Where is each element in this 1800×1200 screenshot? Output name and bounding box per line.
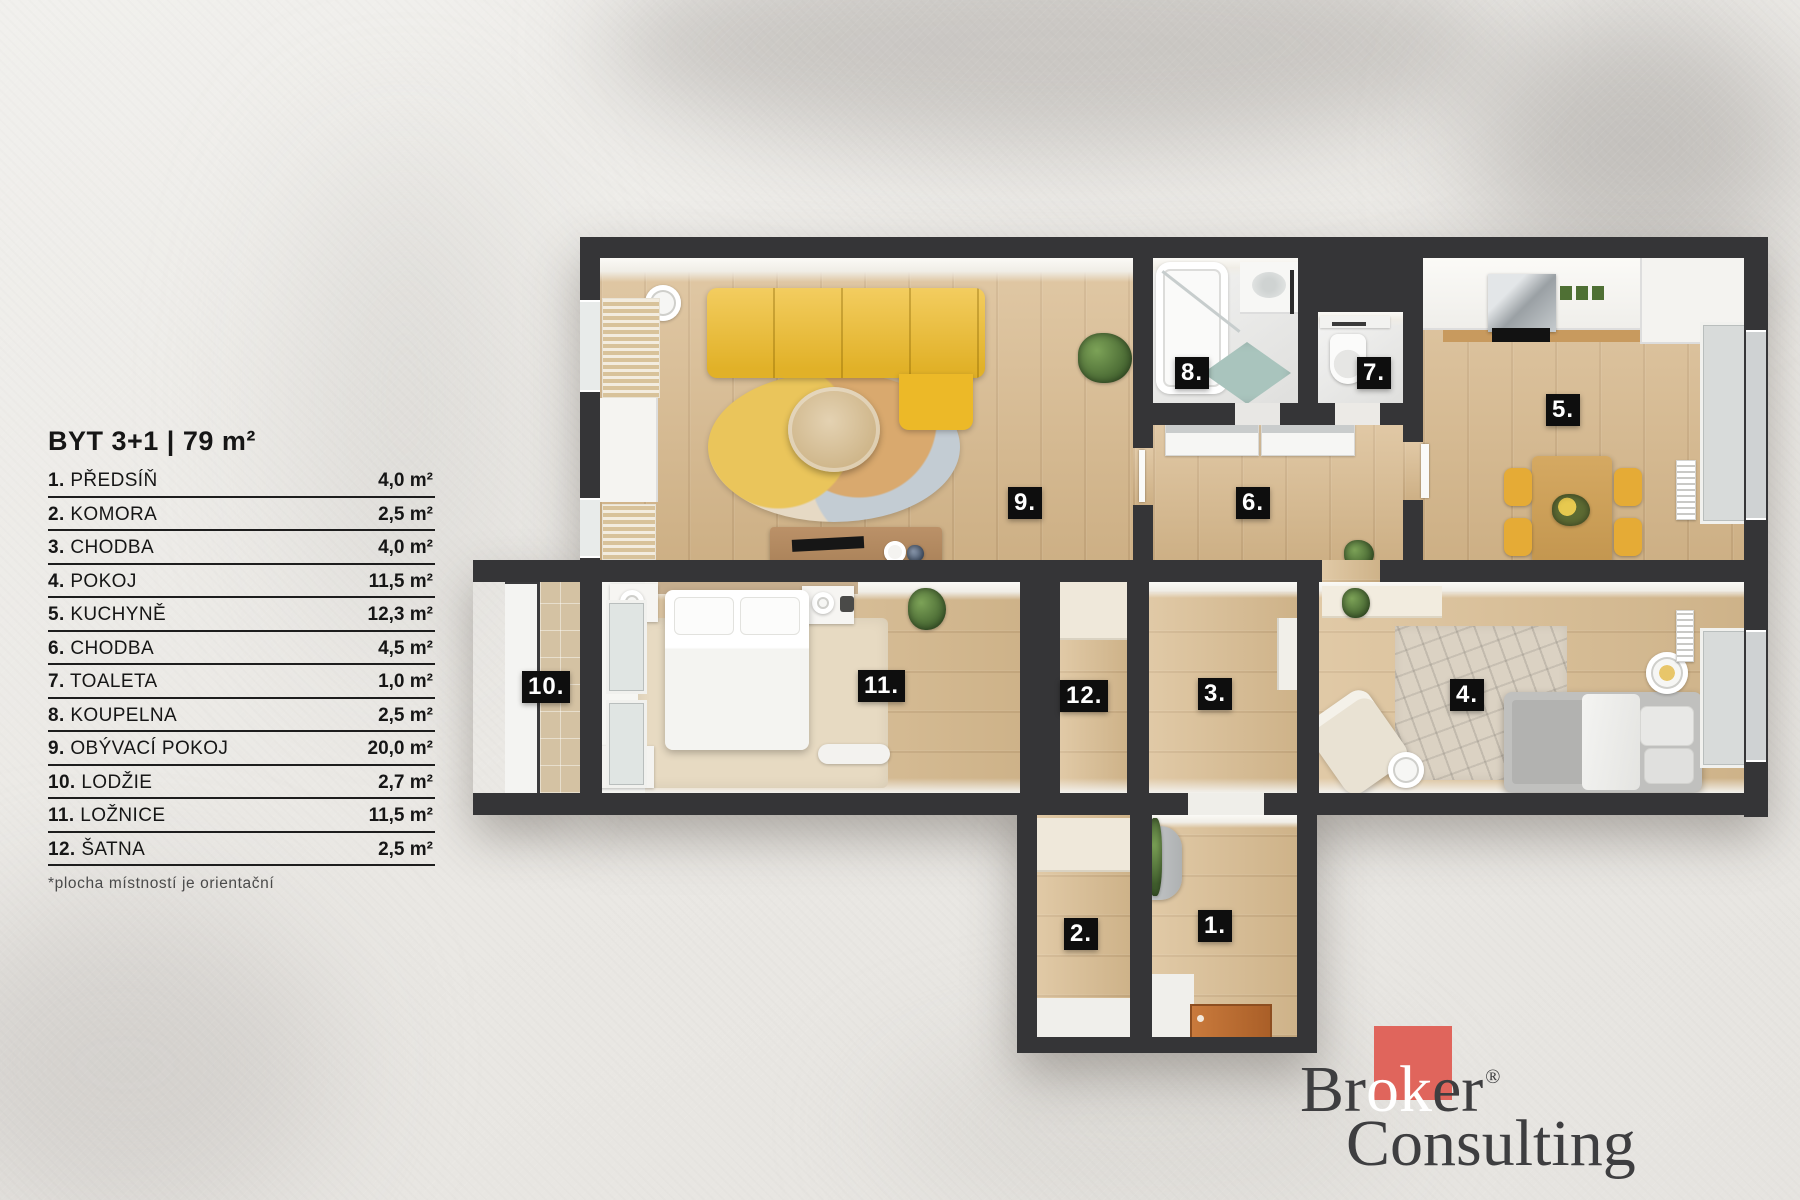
legend-row-area: 11,5 m² xyxy=(369,571,433,594)
pillow xyxy=(1640,706,1694,746)
towel-rail xyxy=(1290,270,1294,314)
legend-row-label: KOUPELNA xyxy=(70,705,177,726)
blanket xyxy=(1582,694,1640,790)
legend-row-area: 20,0 m² xyxy=(368,738,433,761)
window-in-wall xyxy=(580,498,600,558)
legend-row-area: 2,5 m² xyxy=(378,504,433,527)
pillow xyxy=(674,597,734,635)
legend-row: 5. KUCHYNĚ12,3 m² xyxy=(48,604,435,632)
legend-row-label: POKOJ xyxy=(70,571,136,592)
logo-line2: Consulting xyxy=(1346,1109,1780,1179)
wall xyxy=(1133,258,1153,560)
legend-row: 1. PŘEDSÍŇ4,0 m² xyxy=(48,470,435,498)
window xyxy=(1700,628,1750,768)
door-opening xyxy=(1403,442,1423,500)
legend-row-number: 5. xyxy=(48,604,65,625)
towel-bar xyxy=(1332,322,1366,326)
legend-row: 7. TOALETA1,0 m² xyxy=(48,671,435,699)
wall-face xyxy=(600,258,1133,282)
legend-row-area: 4,5 m² xyxy=(378,638,433,661)
legend-row-area: 4,0 m² xyxy=(378,537,433,560)
legend-row-area: 1,0 m² xyxy=(378,671,433,694)
legend-row-number: 4. xyxy=(48,571,65,592)
door-niche xyxy=(1277,618,1297,690)
legend-row: 3. CHODBA4,0 m² xyxy=(48,537,435,565)
wall xyxy=(580,582,602,793)
legend-row-label: CHODBA xyxy=(70,638,154,659)
legend-row-number: 8. xyxy=(48,705,65,726)
wall xyxy=(1130,815,1152,1037)
floor-white xyxy=(1152,974,1194,1038)
legend-row-label: TOALETA xyxy=(70,671,158,692)
chair xyxy=(1614,518,1642,556)
room-label-4: 4. xyxy=(1450,679,1484,711)
wall xyxy=(1298,258,1410,312)
room-label-11: 11. xyxy=(858,670,905,702)
door-opening xyxy=(1235,403,1280,425)
table-flowers xyxy=(1552,494,1590,526)
wall xyxy=(1127,582,1149,793)
wall-face xyxy=(1149,582,1297,598)
legend-row: 9. OBÝVACÍ POKOJ20,0 m² xyxy=(48,738,435,766)
room-label-6: 6. xyxy=(1236,487,1270,519)
room-label-1: 1. xyxy=(1198,910,1232,942)
bedroom-window xyxy=(606,700,647,788)
legend-row-number: 11. xyxy=(48,805,75,826)
legend-row-number: 2. xyxy=(48,504,65,525)
wall xyxy=(473,793,1768,815)
pillow xyxy=(1644,748,1694,784)
wall xyxy=(1017,1037,1317,1053)
bedroom-window xyxy=(606,600,647,694)
background-texture xyxy=(0,900,340,1200)
door-leaf xyxy=(1139,450,1145,502)
legend-row-area: 12,3 m² xyxy=(368,604,433,627)
wall-face xyxy=(1149,778,1297,793)
window-in-wall xyxy=(1746,330,1766,520)
door-opening xyxy=(1335,403,1380,425)
legend-row-area: 2,5 m² xyxy=(378,839,433,862)
legend-row-area: 11,5 m² xyxy=(369,805,433,828)
broker-consulting-logo: Broker® Consulting xyxy=(1300,1042,1780,1179)
herb-pots xyxy=(1560,286,1604,300)
legend-row-number: 12. xyxy=(48,839,76,860)
room-label-12: 12. xyxy=(1060,680,1108,712)
door-leaf xyxy=(1421,444,1429,498)
legend-row-label: OBÝVACÍ POKOJ xyxy=(70,738,228,759)
legend-row: 8. KOUPELNA2,5 m² xyxy=(48,705,435,733)
legend-row-label: LODŽIE xyxy=(81,772,152,793)
wardrobe xyxy=(1060,582,1127,640)
legend-title: BYT 3+1 | 79 m² xyxy=(48,426,435,456)
bedside-decor xyxy=(840,596,854,612)
room-label-3: 3. xyxy=(1198,678,1232,710)
legend-row-label: CHODBA xyxy=(70,537,154,558)
range-hood xyxy=(1488,274,1556,332)
wall-face xyxy=(1152,815,1297,828)
legend-row-label: PŘEDSÍŇ xyxy=(70,470,157,491)
room-label-2: 2. xyxy=(1064,918,1098,950)
chair xyxy=(1504,468,1532,506)
bench xyxy=(818,744,890,764)
entry-door-mat xyxy=(1190,1004,1272,1040)
wall xyxy=(1017,793,1037,1053)
wall xyxy=(1403,237,1423,560)
door-handle xyxy=(1197,1015,1204,1022)
washer xyxy=(1165,424,1259,456)
window-blind xyxy=(602,298,660,398)
legend-row-label: ŠATNA xyxy=(81,839,145,860)
pillow xyxy=(740,597,800,635)
registered-mark: ® xyxy=(1485,1066,1500,1088)
radiator xyxy=(1676,610,1694,662)
legend-row-label: KUCHYNĚ xyxy=(70,604,166,625)
wall xyxy=(1297,582,1319,793)
legend: BYT 3+1 | 79 m² 1. PŘEDSÍŇ4,0 m² 2. KOMO… xyxy=(48,426,435,893)
legend-row: 2. KOMORA2,5 m² xyxy=(48,504,435,532)
legend-row-area: 2,7 m² xyxy=(378,772,433,795)
door-opening xyxy=(1322,560,1380,582)
chair xyxy=(1614,468,1642,506)
wall xyxy=(1297,793,1317,1053)
room-label-5: 5. xyxy=(1546,394,1580,426)
sofa xyxy=(707,288,985,378)
cooktop xyxy=(1492,328,1550,342)
floorplan-page: 1. 2. 3. 4. 5. 6. 7. 8. 9. 10. 11. 12. B… xyxy=(0,0,1800,1200)
legend-row-label: KOMORA xyxy=(70,504,157,525)
plant xyxy=(1342,588,1370,618)
legend-row: 6. CHODBA4,5 m² xyxy=(48,638,435,666)
kitchen-window xyxy=(1700,322,1750,524)
wall xyxy=(580,237,1768,258)
background-texture xyxy=(600,0,1500,150)
window-blind xyxy=(602,504,656,560)
room-label-8: 8. xyxy=(1175,357,1209,389)
legend-row-label: LOŽNICE xyxy=(80,805,165,826)
door-opening xyxy=(1188,793,1264,815)
shelf xyxy=(1322,586,1442,618)
side-table xyxy=(1388,752,1424,788)
legend-row-area: 4,0 m² xyxy=(378,470,433,493)
chair xyxy=(1504,518,1532,556)
coffee-table xyxy=(788,387,880,472)
window-sill xyxy=(600,398,658,502)
legend-row: 10. LODŽIE2,7 m² xyxy=(48,772,435,800)
wall xyxy=(473,560,1768,582)
window-in-wall xyxy=(1746,630,1766,762)
plant xyxy=(1078,333,1132,383)
legend-row-area: 2,5 m² xyxy=(378,705,433,728)
legend-row-number: 7. xyxy=(48,671,65,692)
plant xyxy=(908,588,946,630)
legend-row: 11. LOŽNICE11,5 m² xyxy=(48,805,435,833)
legend-row-number: 6. xyxy=(48,638,65,659)
wall xyxy=(1020,582,1060,793)
room-label-9: 9. xyxy=(1008,487,1042,519)
radiator xyxy=(1676,460,1696,520)
legend-row-number: 1. xyxy=(48,470,65,491)
sink-basin xyxy=(1252,272,1286,298)
legend-row-number: 9. xyxy=(48,738,65,759)
dryer xyxy=(1261,424,1355,456)
legend-footnote: *plocha místností je orientační xyxy=(48,875,435,893)
bedside-lamp xyxy=(812,592,834,614)
window-in-wall xyxy=(580,300,600,392)
floor-white xyxy=(1037,998,1130,1037)
legend-row: 4. POKOJ11,5 m² xyxy=(48,571,435,599)
sofa-chaise xyxy=(899,374,973,430)
legend-row-number: 3. xyxy=(48,537,65,558)
legend-row-number: 10. xyxy=(48,772,76,793)
wall-face xyxy=(1060,778,1127,793)
room-label-10: 10. xyxy=(522,671,570,703)
shelf xyxy=(1037,818,1130,872)
room-label-7: 7. xyxy=(1357,357,1391,389)
legend-row: 12. ŠATNA2,5 m² xyxy=(48,839,435,867)
